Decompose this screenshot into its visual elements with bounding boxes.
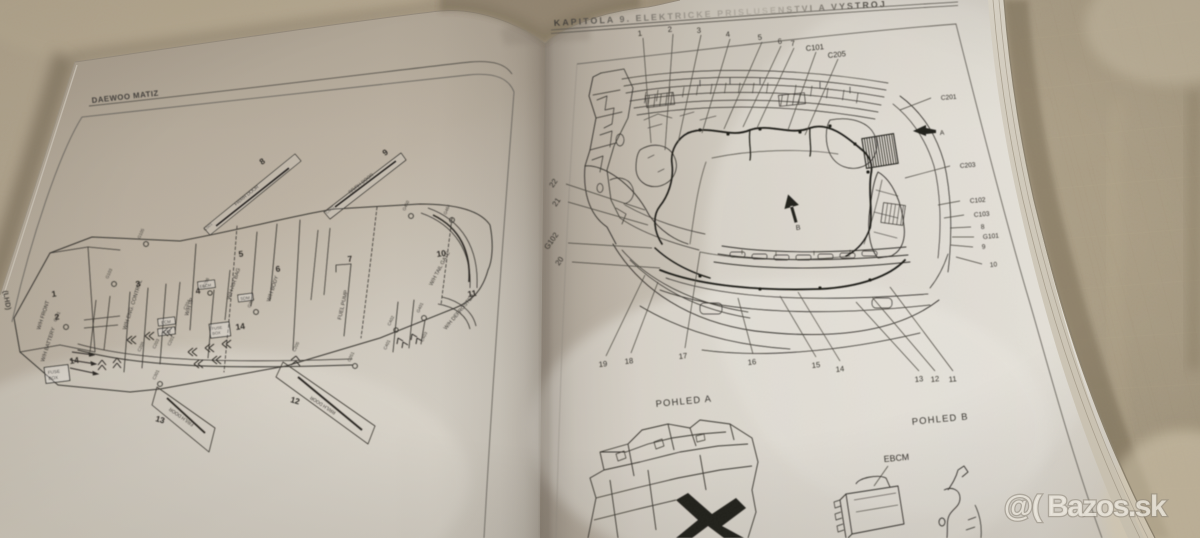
- svg-text:@( Bazos.sk: @( Bazos.sk: [1004, 490, 1167, 523]
